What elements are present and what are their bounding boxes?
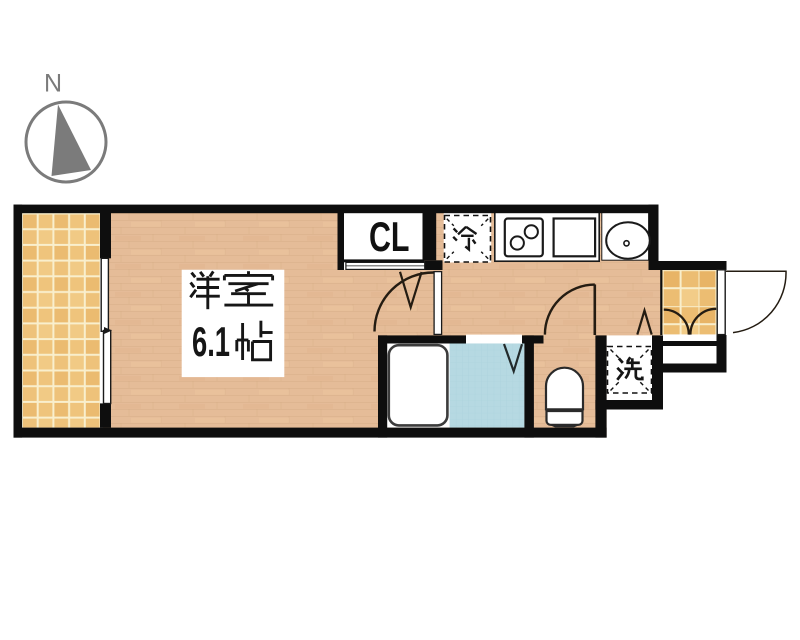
svg-text:N: N: [44, 70, 62, 98]
svg-text:6.1: 6.1: [192, 318, 230, 365]
svg-text:CL: CL: [369, 213, 410, 260]
